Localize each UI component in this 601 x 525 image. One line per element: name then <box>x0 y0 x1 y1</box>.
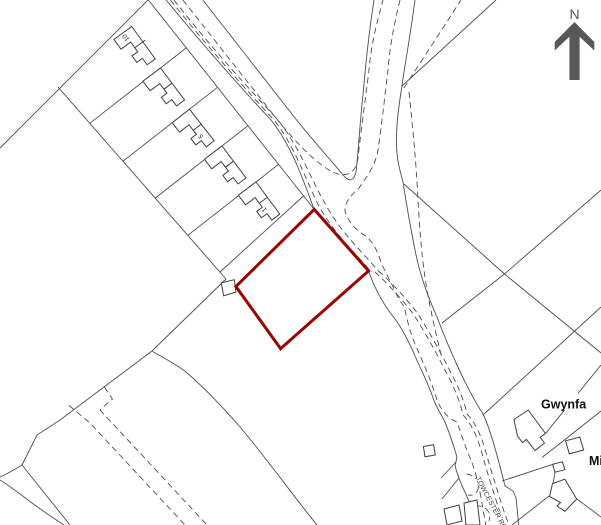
svg-text:Mill: Mill <box>589 454 601 468</box>
svg-text:Gwynfa: Gwynfa <box>541 398 587 412</box>
svg-text:N: N <box>569 6 579 22</box>
